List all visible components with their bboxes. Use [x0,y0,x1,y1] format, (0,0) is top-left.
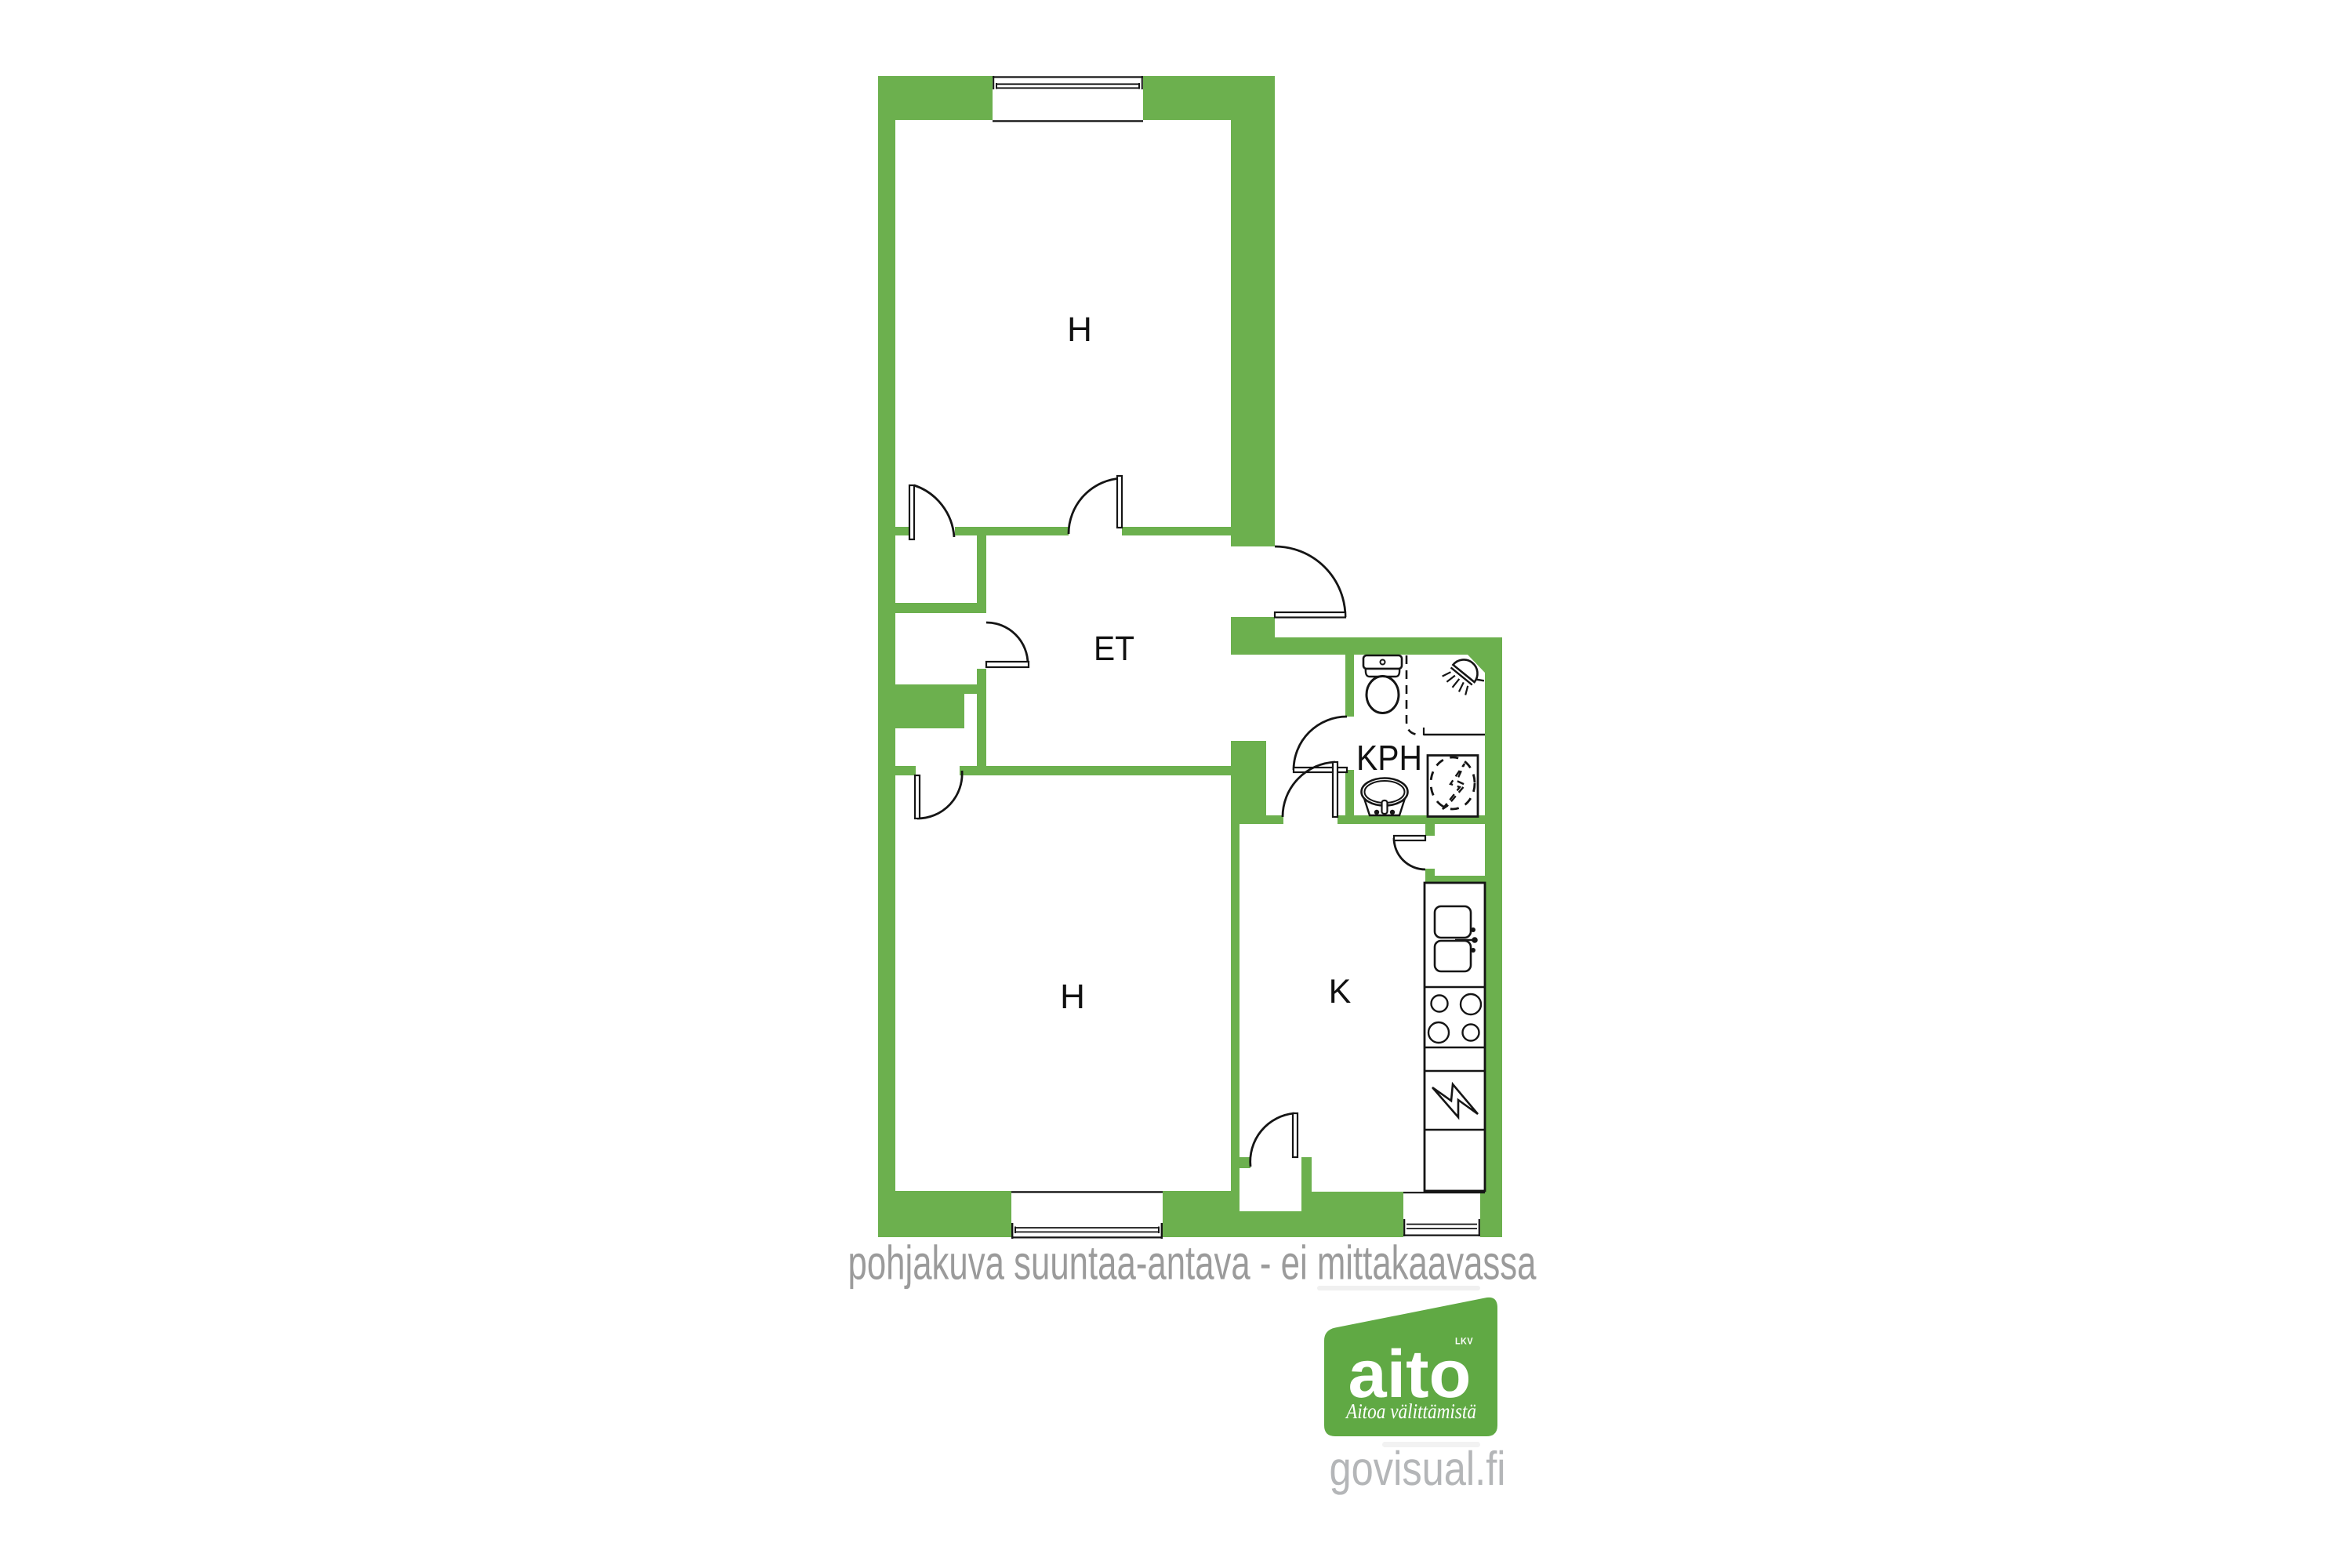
svg-text:K: K [1329,973,1352,1011]
svg-text:H: H [1067,310,1092,349]
svg-text:govisual.fi: govisual.fi [1330,1442,1506,1495]
svg-text:ET: ET [1094,630,1134,668]
svg-text:Aitoa välittämistä: Aitoa välittämistä [1345,1399,1476,1423]
svg-text:KPH: KPH [1356,738,1422,778]
svg-text:pohjakuva suuntaa-antava - ei: pohjakuva suuntaa-antava - ei mittakaava… [848,1236,1537,1290]
svg-text:H: H [1060,978,1085,1016]
svg-text:LKV: LKV [1455,1336,1473,1347]
